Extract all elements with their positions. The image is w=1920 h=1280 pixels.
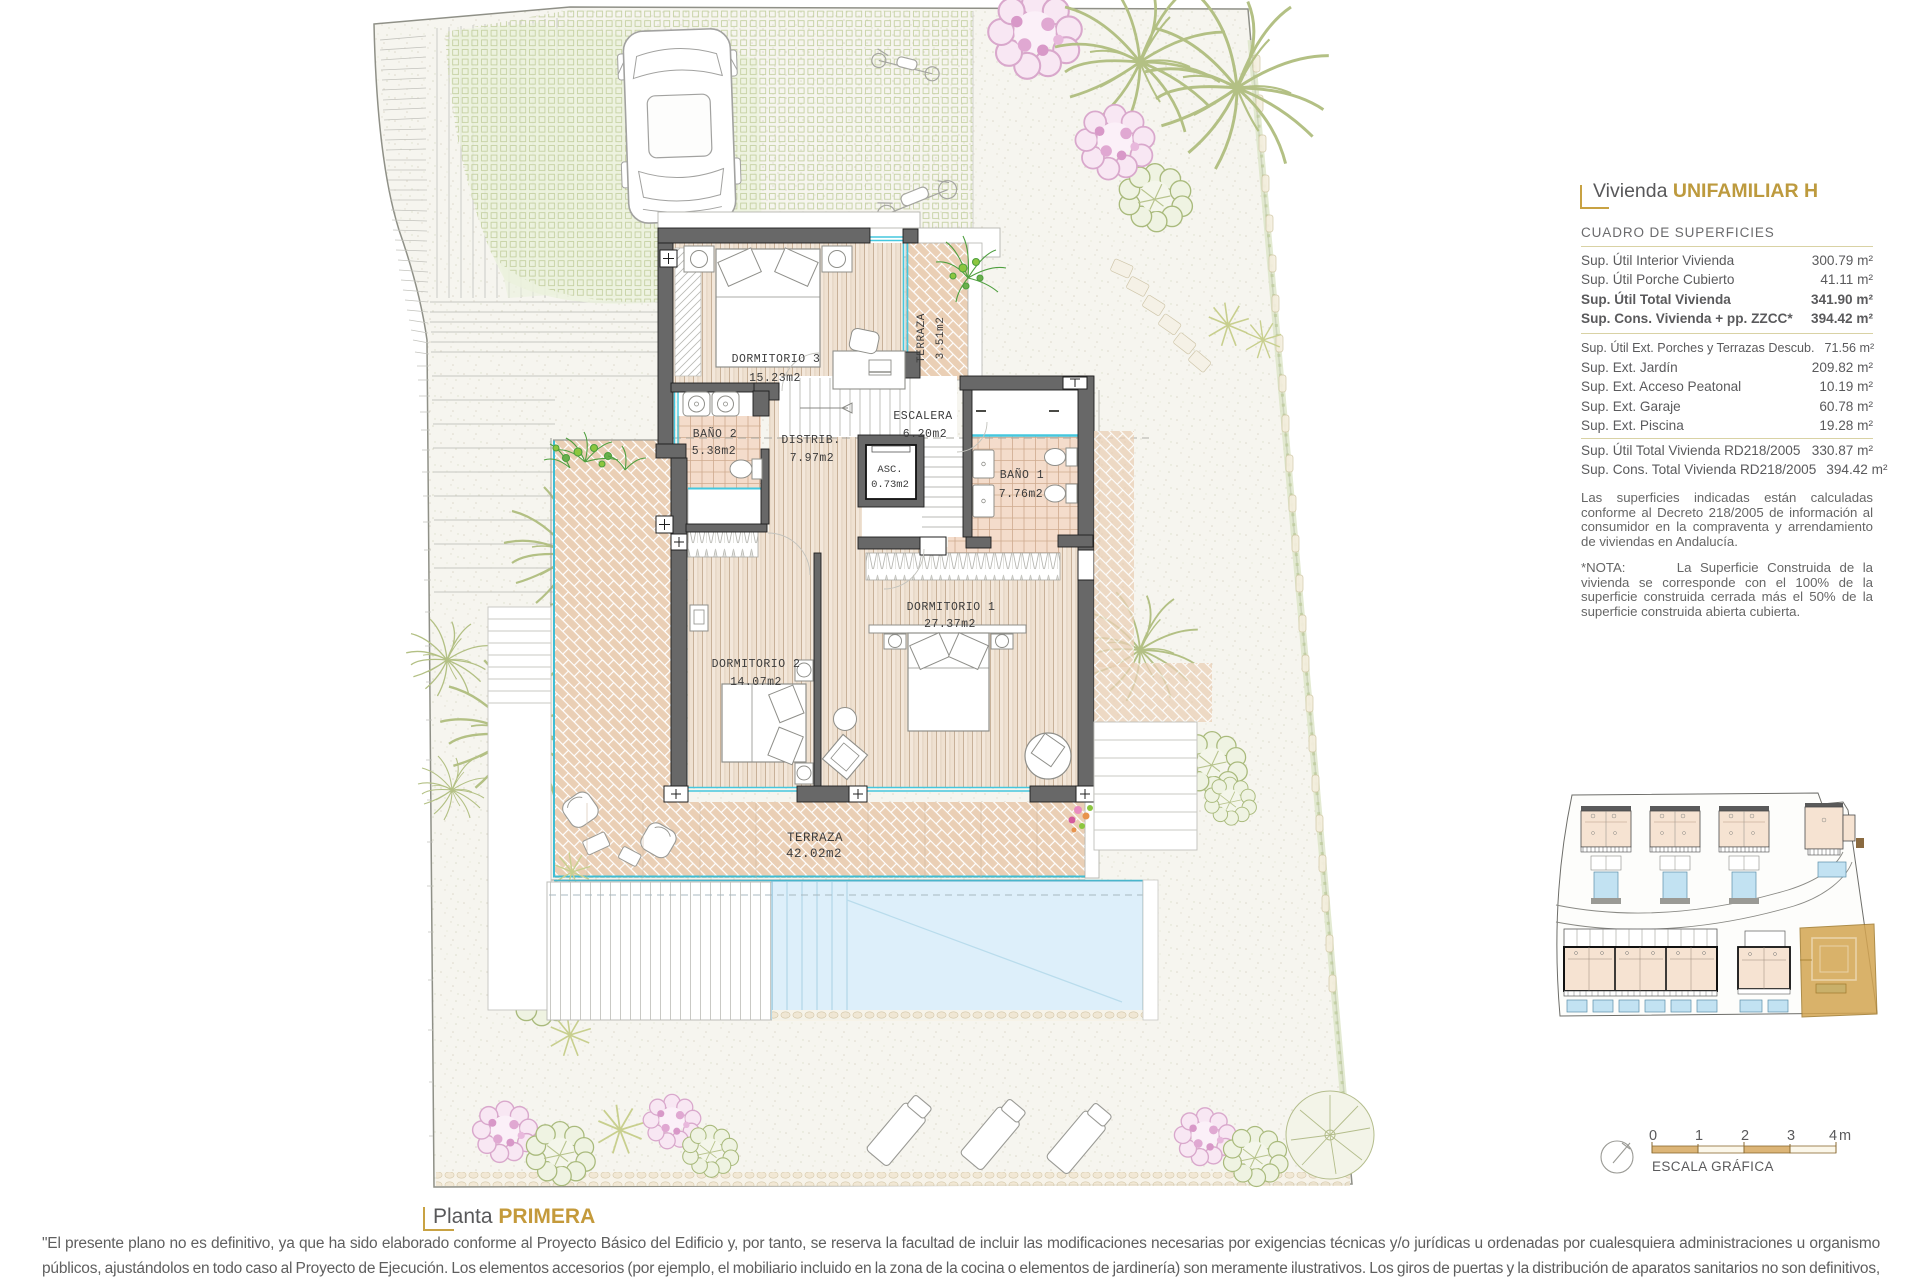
svg-text:BAÑO 1: BAÑO 1 — [1000, 469, 1044, 482]
svg-text:m: m — [1839, 1128, 1851, 1144]
svg-text:7.76m2: 7.76m2 — [999, 488, 1043, 501]
svg-text:DORMITORIO 3: DORMITORIO 3 — [732, 353, 821, 366]
svg-text:15.23m2: 15.23m2 — [749, 372, 801, 385]
svg-text:DISTRIB.: DISTRIB. — [781, 434, 840, 447]
svg-text:5.38m2: 5.38m2 — [692, 445, 736, 458]
svg-text:3.51m2: 3.51m2 — [935, 317, 947, 360]
svg-text:0.73m2: 0.73m2 — [871, 479, 909, 491]
svg-text:ESCALERA: ESCALERA — [893, 410, 952, 423]
svg-text:1: 1 — [1695, 1128, 1703, 1144]
svg-text:4: 4 — [1829, 1128, 1837, 1144]
svg-text:7.97m2: 7.97m2 — [790, 452, 834, 465]
svg-text:ESCALA GRÁFICA: ESCALA GRÁFICA — [1652, 1159, 1774, 1174]
svg-text:TERRAZA: TERRAZA — [787, 831, 843, 845]
svg-text:ASC.: ASC. — [877, 464, 902, 476]
svg-text:3: 3 — [1787, 1128, 1795, 1144]
svg-text:DORMITORIO 2: DORMITORIO 2 — [712, 658, 801, 671]
svg-text:27.37m2: 27.37m2 — [924, 618, 976, 631]
svg-text:BAÑO 2: BAÑO 2 — [693, 428, 737, 441]
svg-text:TERRAZA: TERRAZA — [916, 313, 928, 363]
svg-text:14.07m2: 14.07m2 — [730, 676, 782, 689]
svg-text:0: 0 — [1649, 1128, 1657, 1144]
svg-text:DORMITORIO 1: DORMITORIO 1 — [907, 601, 996, 614]
svg-text:42.02m2: 42.02m2 — [786, 847, 842, 861]
svg-text:6.20m2: 6.20m2 — [903, 428, 947, 441]
svg-text:2: 2 — [1741, 1128, 1749, 1144]
